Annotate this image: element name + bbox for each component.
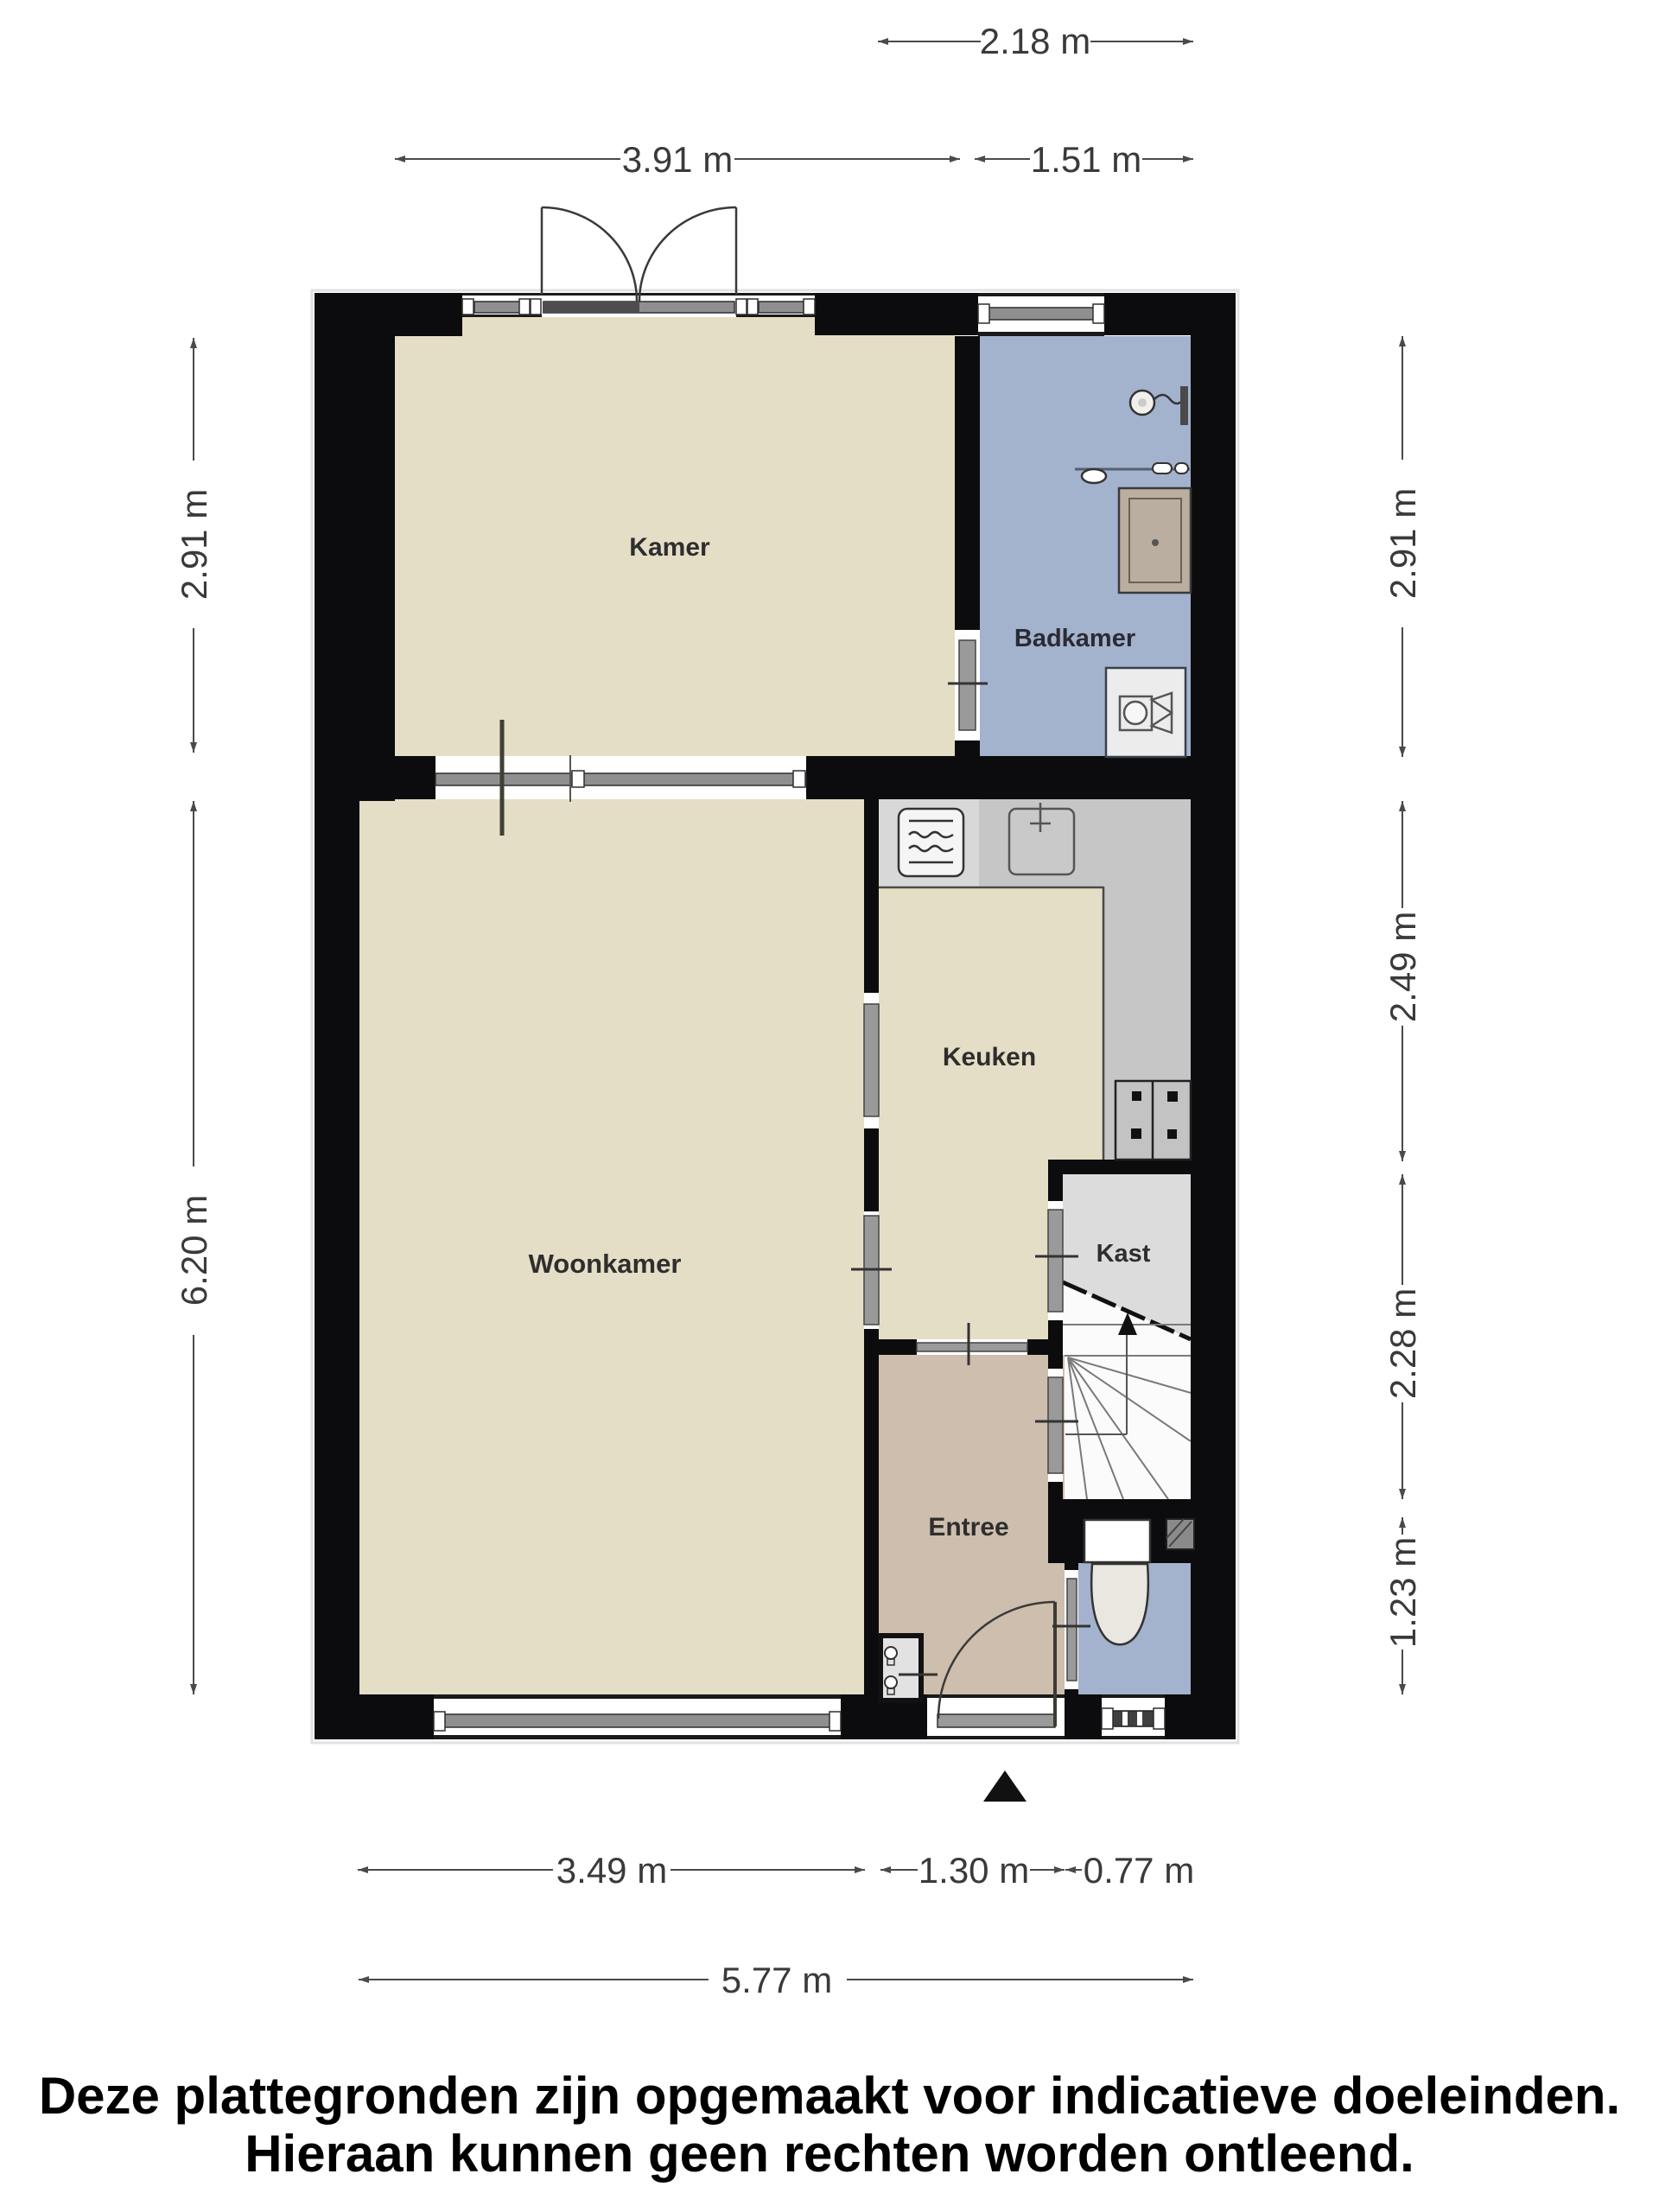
svg-text:2.28 m: 2.28 m [1382, 1288, 1423, 1399]
svg-text:1.23 m: 1.23 m [1382, 1537, 1423, 1648]
svg-text:2.49 m: 2.49 m [1382, 912, 1423, 1022]
svg-text:2.18 m: 2.18 m [980, 21, 1090, 61]
svg-text:6.20 m: 6.20 m [174, 1195, 214, 1306]
svg-text:Entree: Entree [928, 1513, 1008, 1541]
svg-text:5.77 m: 5.77 m [721, 1960, 832, 2000]
svg-text:Woonkamer: Woonkamer [529, 1249, 682, 1279]
svg-text:Kast: Kast [1096, 1240, 1151, 1268]
svg-text:Kamer: Kamer [629, 533, 710, 562]
svg-text:3.49 m: 3.49 m [556, 1850, 667, 1891]
svg-text:Deze plattegronden zijn opgema: Deze plattegronden zijn opgemaakt voor i… [39, 2067, 1620, 2125]
svg-text:1.30 m: 1.30 m [918, 1850, 1029, 1891]
svg-text:2.91 m: 2.91 m [1382, 488, 1423, 599]
svg-text:1.51 m: 1.51 m [1031, 139, 1141, 180]
svg-text:2.91 m: 2.91 m [174, 489, 214, 600]
svg-text:0.77 m: 0.77 m [1084, 1850, 1194, 1891]
svg-text:Hieraan kunnen geen rechten wo: Hieraan kunnen geen rechten worden ontle… [245, 2125, 1414, 2183]
svg-text:3.91 m: 3.91 m [622, 139, 733, 180]
svg-text:Keuken: Keuken [943, 1043, 1036, 1071]
svg-text:Badkamer: Badkamer [1014, 625, 1135, 652]
